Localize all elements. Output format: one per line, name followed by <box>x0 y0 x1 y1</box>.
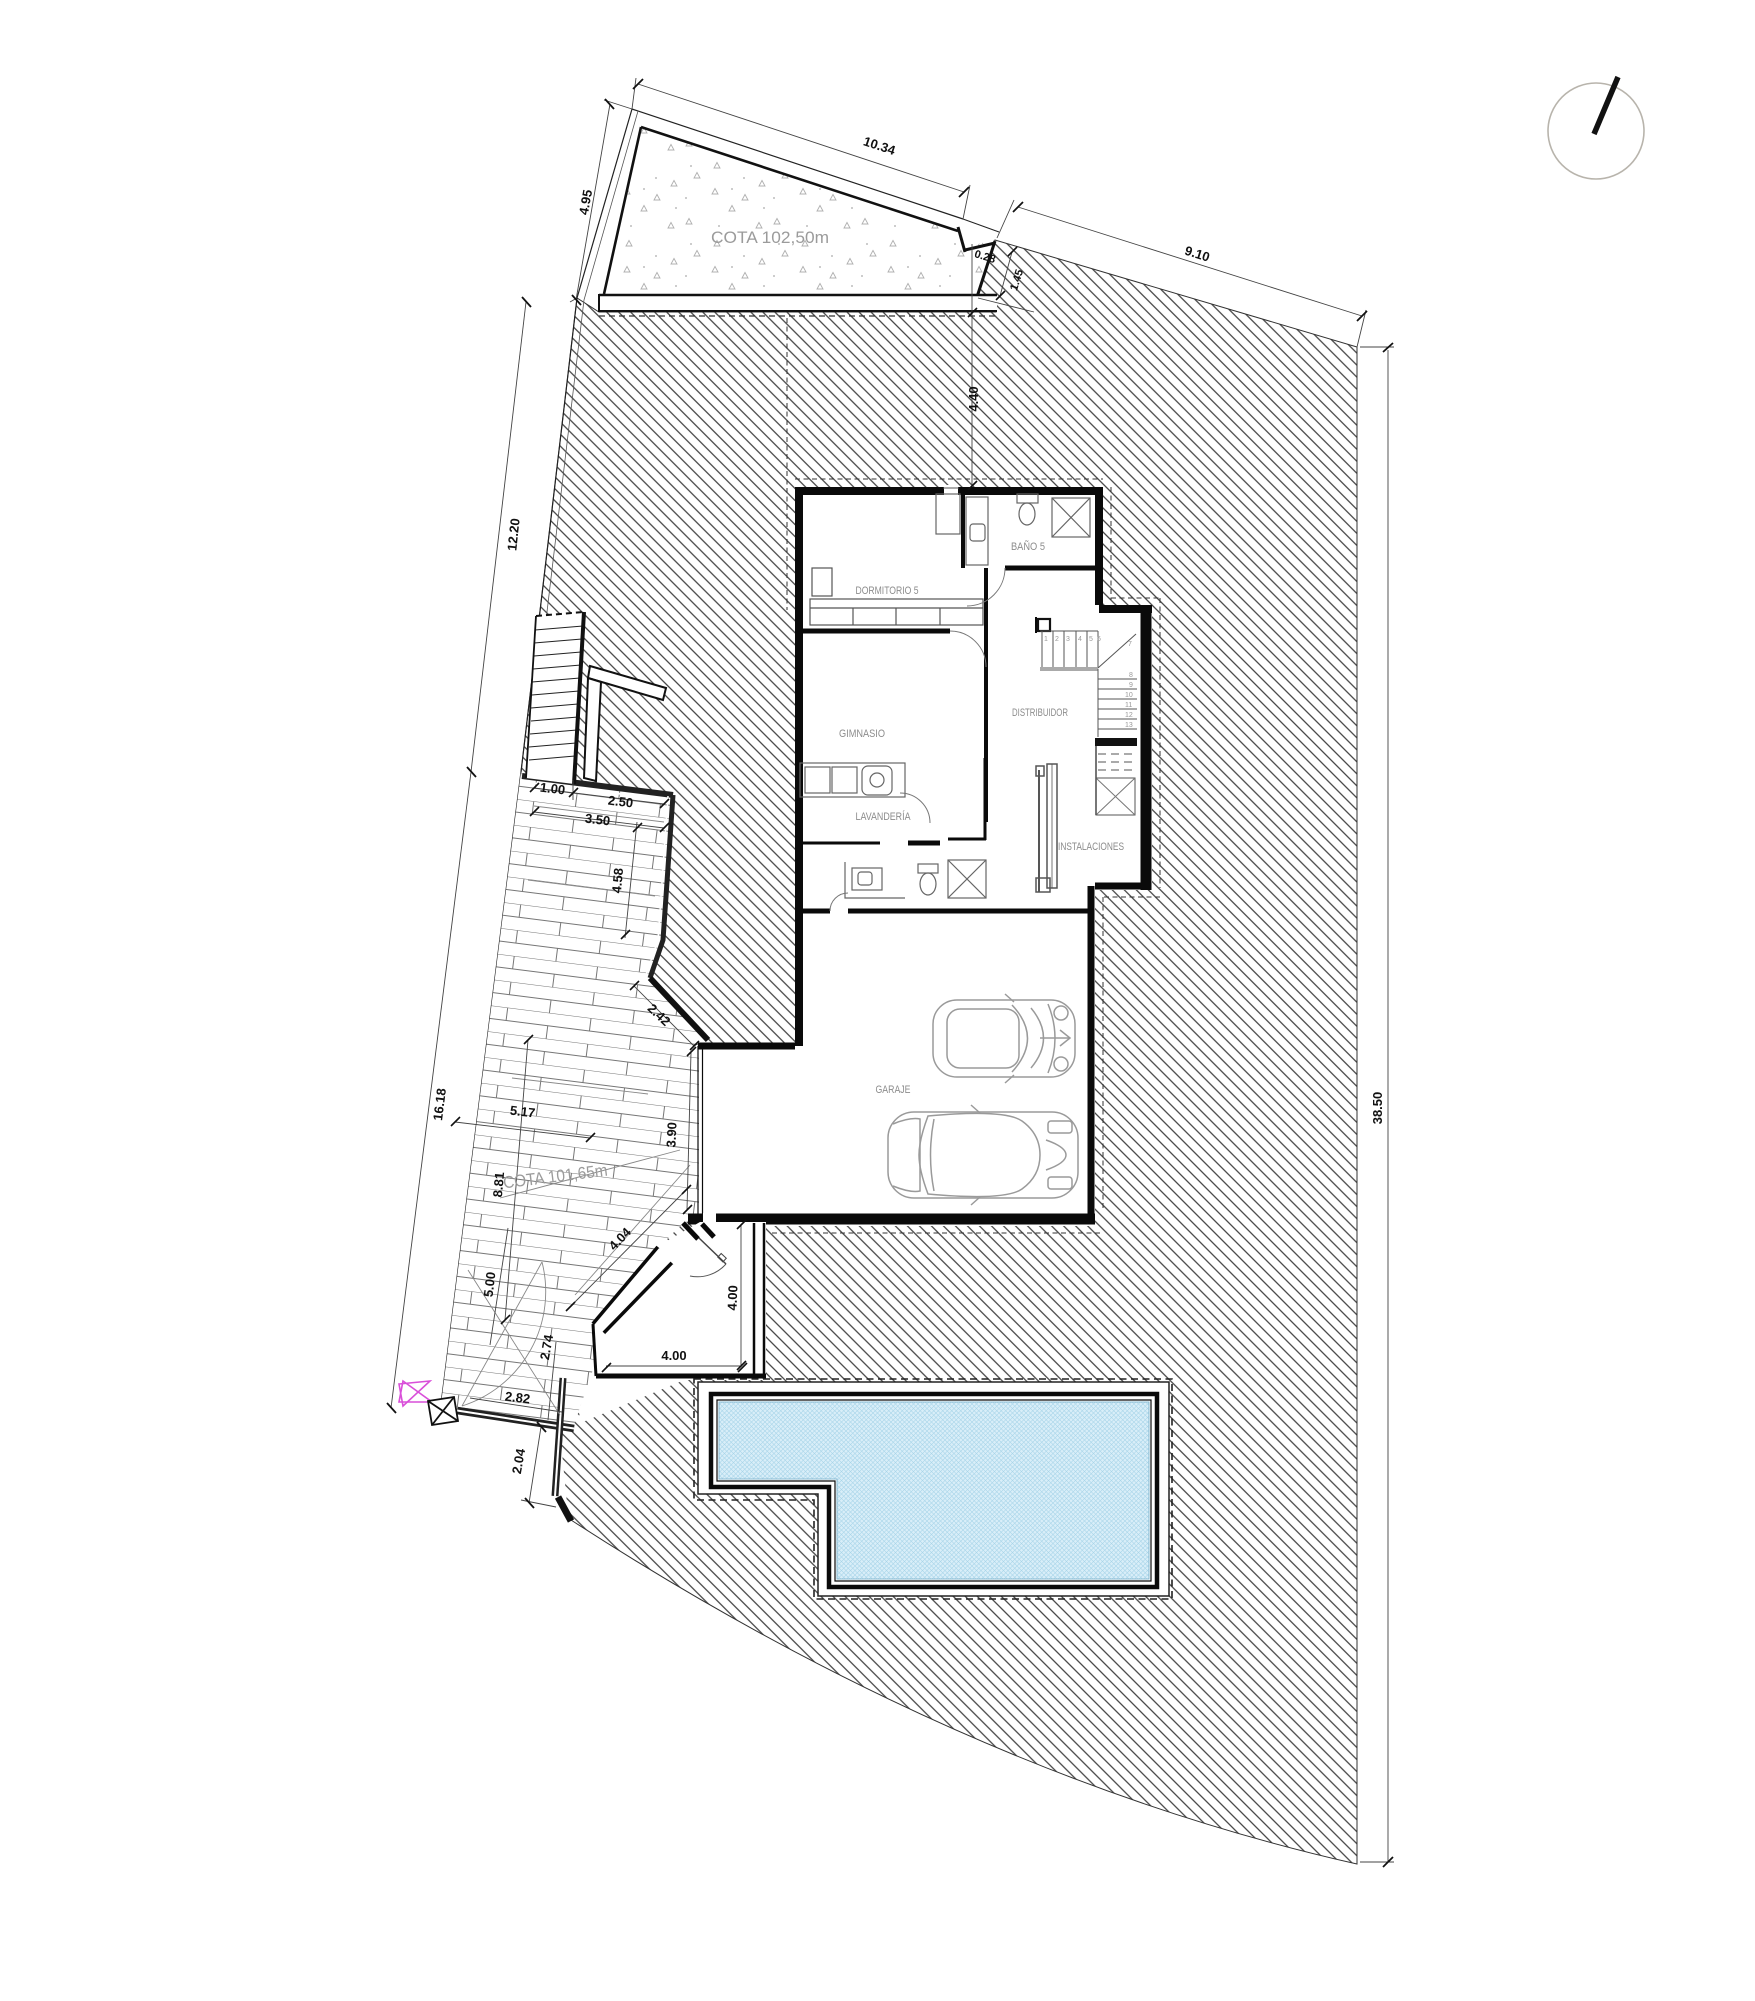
svg-text:2: 2 <box>1055 636 1059 643</box>
svg-text:11: 11 <box>1125 702 1132 709</box>
svg-text:38.50: 38.50 <box>1370 1092 1385 1125</box>
svg-text:BAÑO 5: BAÑO 5 <box>1011 540 1045 553</box>
svg-text:7: 7 <box>1128 641 1132 648</box>
svg-text:1: 1 <box>1044 636 1048 643</box>
svg-text:GIMNASIO: GIMNASIO <box>839 728 885 740</box>
svg-text:INSTALACIONES: INSTALACIONES <box>1058 841 1124 853</box>
svg-text:6: 6 <box>1097 636 1101 643</box>
svg-text:LAVANDERÍA: LAVANDERÍA <box>856 810 912 823</box>
svg-text:5.00: 5.00 <box>481 1271 499 1298</box>
svg-text:2.50: 2.50 <box>607 793 634 811</box>
svg-text:1.00: 1.00 <box>539 780 566 798</box>
svg-text:12: 12 <box>1125 712 1133 719</box>
svg-text:4.00: 4.00 <box>661 1348 686 1363</box>
svg-text:4: 4 <box>1078 636 1082 643</box>
svg-text:8: 8 <box>1129 672 1133 679</box>
svg-text:4.40: 4.40 <box>966 386 981 411</box>
svg-text:13: 13 <box>1125 722 1133 729</box>
svg-text:4.00: 4.00 <box>725 1285 741 1311</box>
svg-text:3.50: 3.50 <box>584 811 611 829</box>
svg-text:3: 3 <box>1066 636 1070 643</box>
svg-text:5.17: 5.17 <box>509 1103 536 1121</box>
svg-text:3.90: 3.90 <box>663 1122 679 1148</box>
svg-text:GARAJE: GARAJE <box>876 1084 911 1096</box>
svg-text:9: 9 <box>1129 682 1133 689</box>
svg-text:COTA 102,50m: COTA 102,50m <box>711 228 829 247</box>
svg-text:DISTRIBUIDOR: DISTRIBUIDOR <box>1012 707 1068 719</box>
svg-text:5: 5 <box>1089 636 1093 643</box>
svg-text:10: 10 <box>1125 692 1133 699</box>
svg-text:2.82: 2.82 <box>504 1389 531 1407</box>
svg-text:DORMITORIO 5: DORMITORIO 5 <box>856 585 919 597</box>
svg-text:4.58: 4.58 <box>609 867 626 894</box>
